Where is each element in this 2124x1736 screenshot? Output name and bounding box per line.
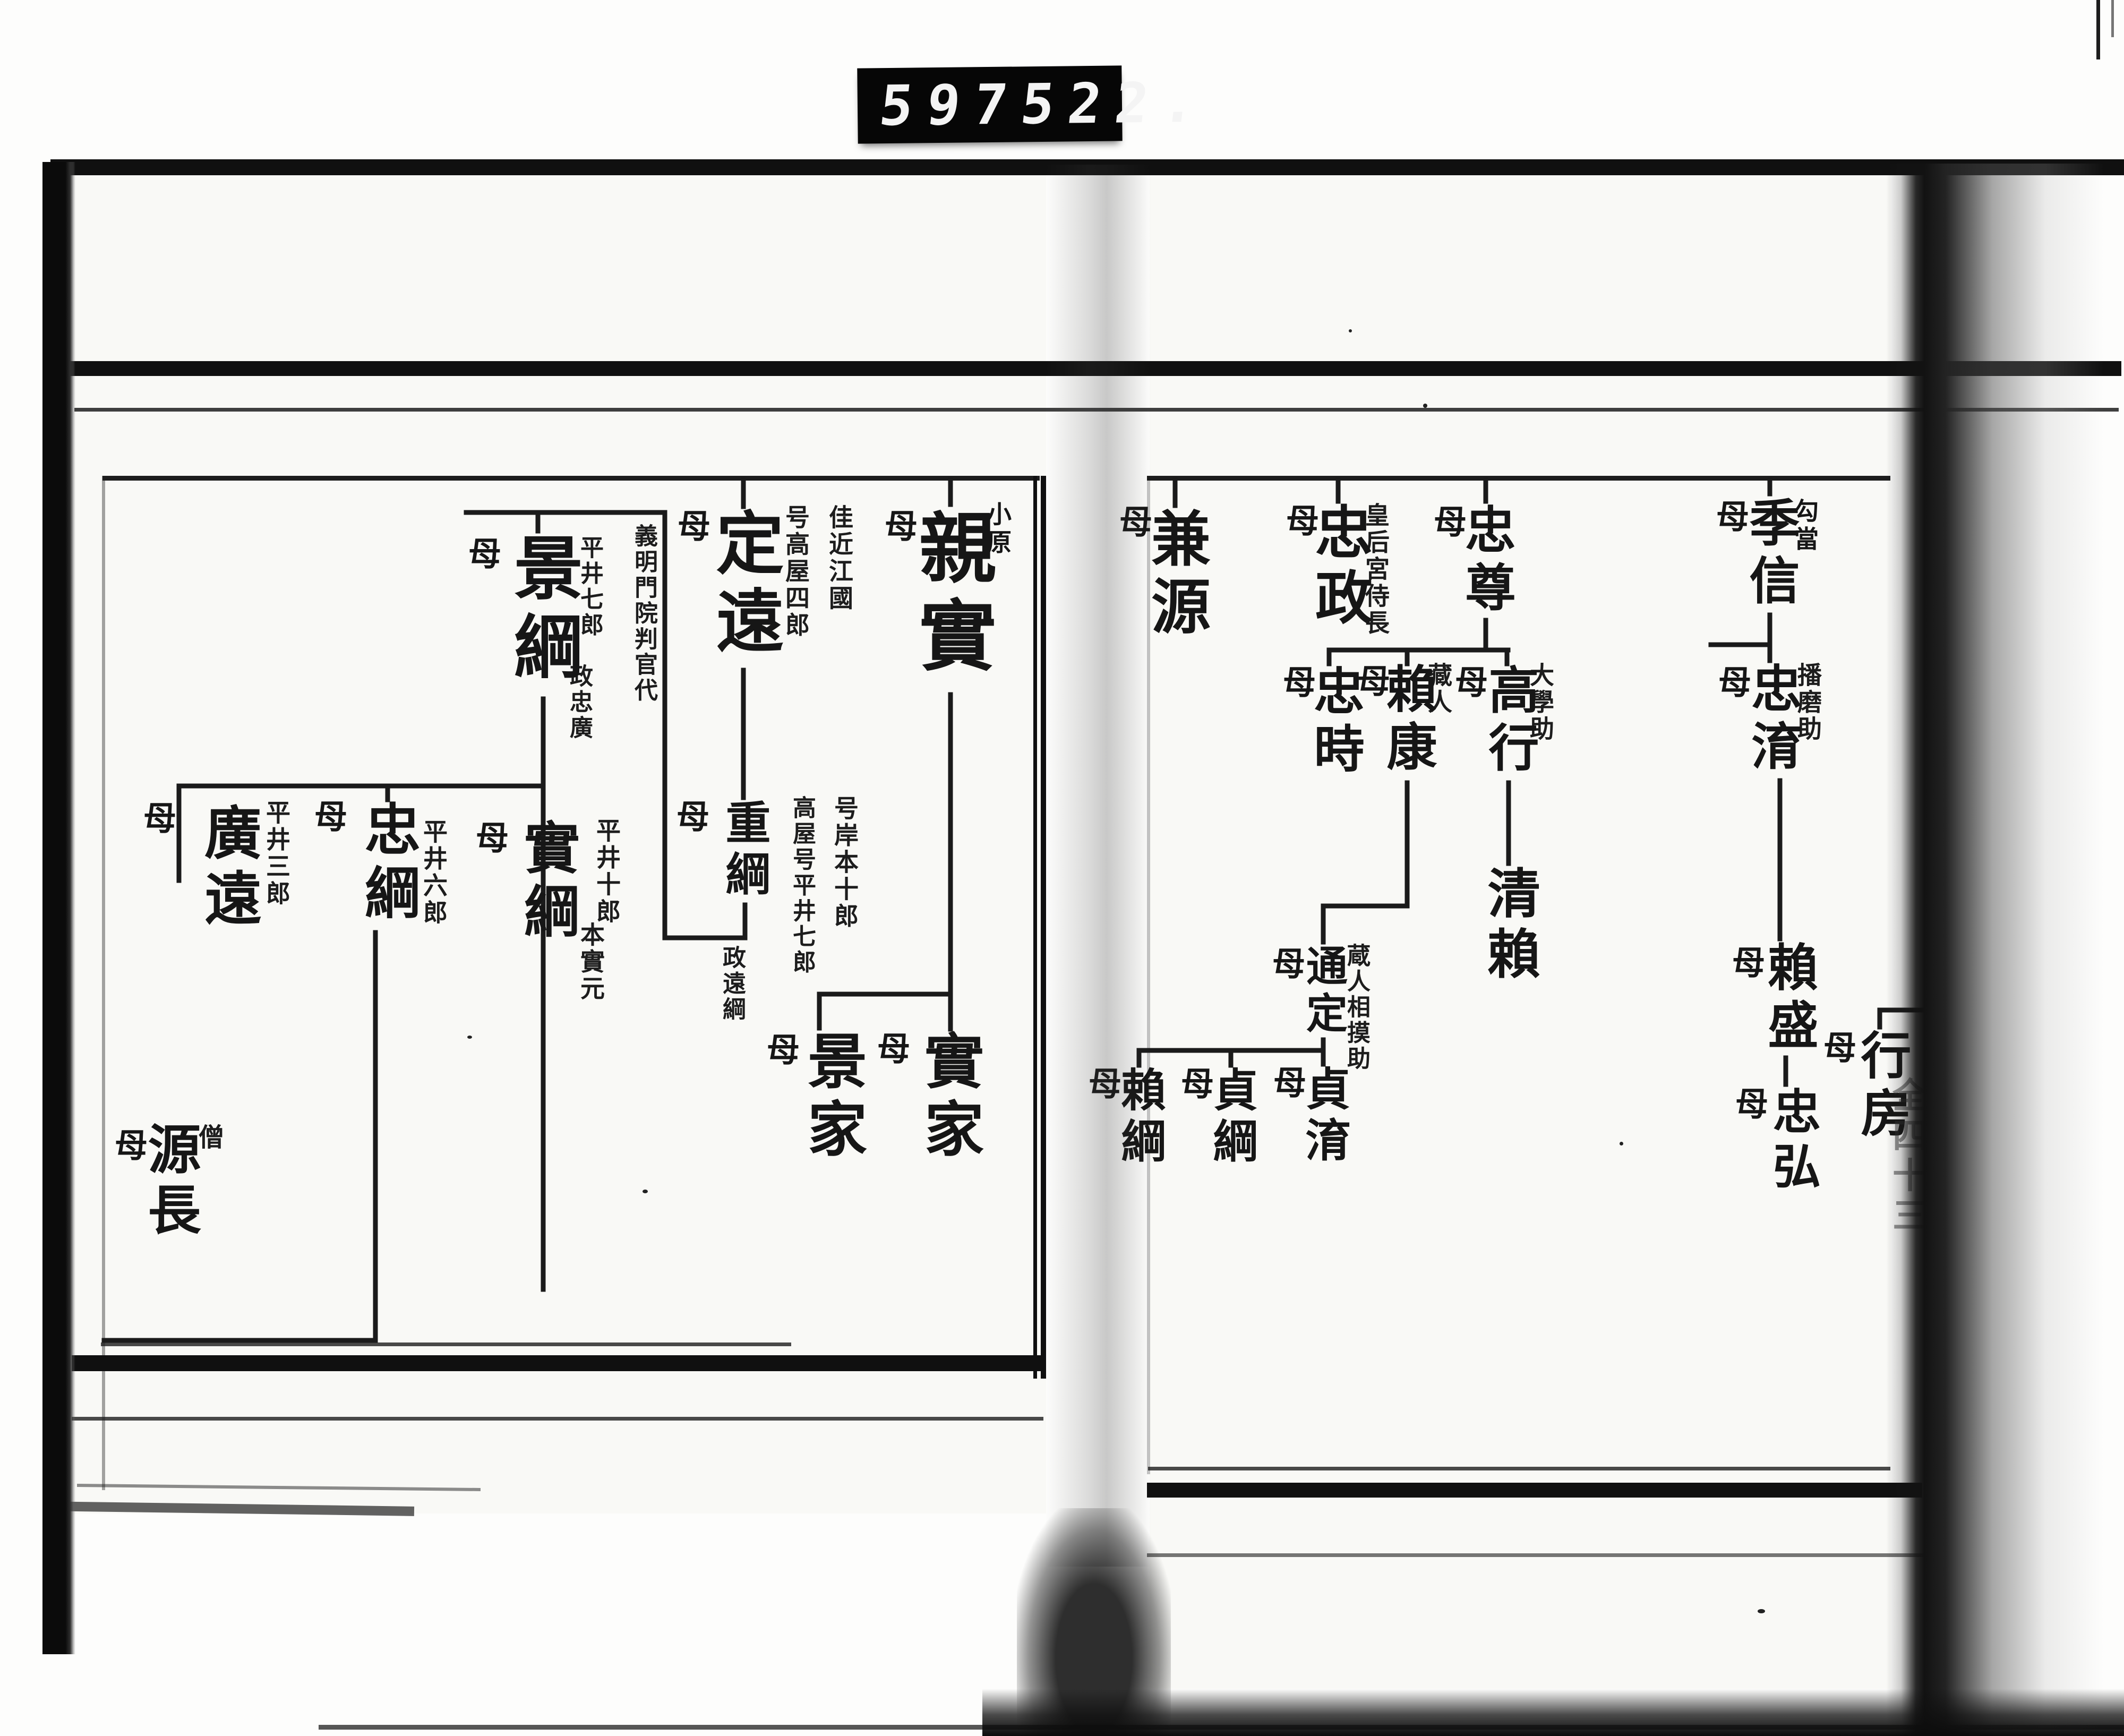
person-name: 景家 bbox=[802, 1030, 861, 1166]
mother-label: 母 bbox=[465, 536, 498, 574]
mother-label: 母 bbox=[140, 801, 173, 839]
person-name: 高行 bbox=[1484, 664, 1535, 779]
person-name: 貞淯 bbox=[1301, 1065, 1346, 1168]
annotation-note: 平井十郎 bbox=[594, 818, 619, 925]
mother-label: 母 bbox=[881, 509, 914, 546]
mother-label: 母 bbox=[111, 1128, 144, 1166]
annotation-note: 号岸本十郎 bbox=[832, 796, 857, 930]
person-name: 忠政 bbox=[1309, 502, 1367, 633]
ink-speck bbox=[1423, 404, 1427, 408]
mother-label: 母 bbox=[873, 1031, 906, 1069]
mother-label: 母 bbox=[1430, 504, 1463, 542]
scanned-book-photo: 勾當季信母播磨助忠淯母賴盛母忠弘母行房母全四十三忠尊母皇后宮侍長忠政母兼源母大學… bbox=[0, 0, 2124, 1736]
person-name: 兼源 bbox=[1145, 508, 1205, 643]
mother-label: 母 bbox=[763, 1032, 796, 1070]
person-name: 親實 bbox=[911, 508, 988, 683]
annotation-note: 平井三郎 bbox=[264, 800, 288, 907]
person-name: 忠弘 bbox=[1768, 1087, 1815, 1195]
mother-label: 母 bbox=[1712, 499, 1745, 537]
person-name: 源長 bbox=[142, 1122, 195, 1243]
annotation-note: 平井六郎 bbox=[421, 819, 446, 926]
person-name: 賴康 bbox=[1382, 663, 1433, 778]
counter-digits-right: 522. bbox=[1017, 70, 1213, 137]
mother-label: 母 bbox=[1732, 1087, 1765, 1124]
mother-label: 母 bbox=[673, 799, 706, 837]
ink-speck bbox=[1620, 1142, 1623, 1145]
annotation-note: 号高屋四郎 bbox=[783, 504, 808, 639]
person-name: 實家 bbox=[919, 1030, 978, 1166]
person-name: 實綱 bbox=[519, 819, 575, 946]
ink-speck bbox=[1349, 329, 1352, 332]
person-name: 定遠 bbox=[709, 508, 777, 663]
annotation-note: 高屋号平井七郎 bbox=[790, 796, 813, 976]
mother-label: 母 bbox=[674, 509, 707, 546]
mother-label: 母 bbox=[1270, 1065, 1303, 1103]
person-name: 景綱 bbox=[507, 532, 576, 689]
person-name: 忠綱 bbox=[360, 800, 416, 927]
book-left-edge bbox=[42, 162, 75, 1654]
person-name: 廣遠 bbox=[199, 803, 256, 934]
annotation-note: 僧 bbox=[195, 1124, 221, 1152]
mother-label: 母 bbox=[1269, 946, 1301, 984]
ink-speck bbox=[467, 1036, 472, 1039]
mother-label: 母 bbox=[1177, 1066, 1210, 1104]
person-name: 賴盛 bbox=[1763, 941, 1814, 1056]
mother-label: 母 bbox=[1451, 665, 1484, 703]
book-right-edge bbox=[1886, 164, 2120, 1736]
book-bottom-edge-shadow bbox=[982, 1689, 2124, 1736]
annotation-note: 佳近江國 bbox=[827, 504, 851, 612]
connector-line bbox=[1323, 783, 1407, 942]
annotation-note: 平井七郎 bbox=[578, 535, 601, 638]
mother-label: 母 bbox=[1282, 503, 1315, 541]
counter-digits-left: 597 bbox=[876, 72, 1025, 138]
annotation-note: 本實元 bbox=[578, 922, 603, 1003]
person-name: 重綱 bbox=[721, 799, 766, 902]
mother-label: 母 bbox=[1728, 945, 1761, 983]
mother-label: 母 bbox=[311, 799, 344, 837]
mother-label: 母 bbox=[1820, 1030, 1853, 1068]
person-name: 季信 bbox=[1745, 497, 1795, 612]
annotation-note: 蔵人相摸助 bbox=[1344, 943, 1368, 1072]
person-name: 清賴 bbox=[1482, 866, 1535, 987]
person-name: 通定 bbox=[1303, 944, 1344, 1039]
mother-label: 母 bbox=[472, 820, 505, 858]
ink-speck bbox=[1758, 1609, 1765, 1613]
mother-label: 母 bbox=[1715, 665, 1748, 703]
person-name: 忠尊 bbox=[1461, 503, 1511, 619]
film-frame-counter: 597 522. bbox=[857, 65, 1122, 143]
mother-label: 母 bbox=[1279, 665, 1312, 703]
ink-speck bbox=[643, 1190, 648, 1193]
person-name: 忠時 bbox=[1309, 665, 1360, 780]
person-name: 貞綱 bbox=[1209, 1066, 1254, 1169]
page-gutter-shadow bbox=[1045, 165, 1151, 1567]
annotation-note: 政遠綱 bbox=[720, 945, 743, 1022]
person-name: 忠淯 bbox=[1747, 662, 1797, 777]
annotation-note: 義明門院判官代 bbox=[632, 524, 655, 704]
